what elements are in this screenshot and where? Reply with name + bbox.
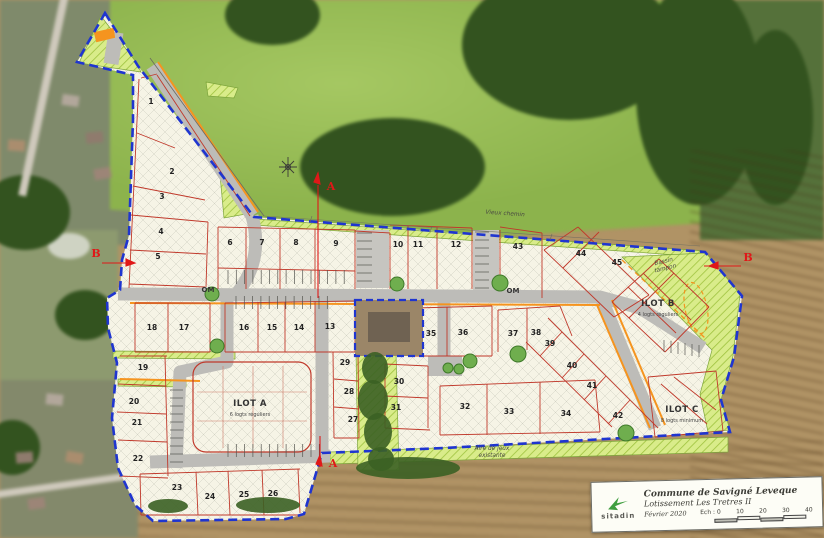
lot-number-32: 32 (460, 402, 470, 411)
hedge (364, 413, 392, 451)
lot-number-31: 31 (391, 403, 401, 412)
lot-number-35: 35 (426, 329, 436, 338)
title-block-text: Commune de Savigné Leveque Lotissement L… (640, 485, 819, 522)
lot-number-42: 42 (613, 411, 623, 420)
lot-number-20: 20 (129, 397, 139, 406)
logo-text: sitadin (601, 511, 635, 520)
sitadin-logo-icon (605, 493, 631, 512)
lot-number-30: 30 (394, 377, 404, 386)
tree-icon (454, 364, 464, 374)
scale-bar: Ech : 0 10 20 30 40 (700, 506, 818, 521)
annotation: OM (202, 286, 215, 294)
parking-strip (356, 230, 389, 288)
lot-number-7: 7 (259, 238, 264, 247)
scale-tick: 40 (790, 506, 813, 514)
logo: sitadin (596, 493, 641, 520)
scale-tick: 20 (744, 508, 767, 516)
hedge (236, 497, 300, 513)
lot-number-36: 36 (458, 328, 468, 337)
lot-number-41: 41 (587, 381, 597, 390)
lot-number-34: 34 (561, 409, 571, 418)
lot-number-43: 43 (513, 242, 523, 251)
tree-icon (463, 354, 477, 368)
ilot-sublabel: 8 logts minimum (661, 418, 703, 424)
north-compass-icon (279, 157, 297, 177)
lot-number-4: 4 (158, 227, 163, 236)
lot-number-26: 26 (268, 489, 278, 498)
lot-number-12: 12 (451, 240, 461, 249)
ilot-sublabel: 6 logts réguliers (230, 411, 271, 418)
annotation: OM (507, 287, 520, 295)
lotissement-plan-overlay: 1234567891011121314151617181920212223242… (0, 0, 824, 538)
hedge (368, 447, 394, 471)
lot-number-16: 16 (239, 323, 249, 332)
lot-number-28: 28 (344, 387, 354, 396)
lot-number-17: 17 (179, 323, 189, 332)
lot-number-23: 23 (172, 483, 182, 492)
existing-building-parcel (355, 300, 423, 356)
site-plan-screenshot: 1234567891011121314151617181920212223242… (0, 0, 824, 538)
lot-number-40: 40 (567, 361, 577, 370)
lot-number-29: 29 (340, 358, 350, 367)
lot-number-14: 14 (294, 323, 304, 332)
lot-number-2: 2 (169, 167, 174, 176)
annotation: Vieux chemin (485, 210, 525, 219)
scale-tick: 30 (767, 507, 790, 515)
ilot-label: ILOT A (233, 399, 267, 409)
lot-number-44: 44 (576, 249, 586, 258)
lot-number-22: 22 (133, 454, 143, 463)
section-marker-A: A (326, 180, 336, 193)
ilot-sublabel: 4 logts réguliers (638, 311, 679, 318)
lot-number-6: 6 (227, 238, 232, 247)
lot-number-21: 21 (132, 418, 142, 427)
hedge (358, 380, 388, 420)
tree-icon (443, 363, 453, 373)
lot-number-10: 10 (393, 240, 403, 249)
lot-number-19: 19 (138, 363, 148, 372)
tree-icon (390, 277, 404, 291)
lot-number-24: 24 (205, 492, 215, 501)
ilot-label: ILOT C (665, 405, 699, 415)
tree-icon (618, 425, 634, 441)
lot-number-15: 15 (267, 323, 277, 332)
tree-icon (510, 346, 526, 362)
lot-number-38: 38 (531, 328, 541, 337)
lot-number-13: 13 (325, 322, 335, 331)
scale-tick: 10 (721, 508, 744, 516)
lot-number-3: 3 (159, 192, 164, 201)
hedge (148, 499, 188, 513)
lot-number-33: 33 (504, 407, 514, 416)
tree-icon (210, 339, 224, 353)
section-marker-B: B (91, 247, 100, 260)
lot-number-37: 37 (508, 329, 518, 338)
hedge (362, 352, 388, 384)
section-marker-A: A (328, 457, 338, 470)
section-marker-B: B (743, 251, 752, 264)
plan-date: Février 2020 (644, 509, 700, 518)
lot-number-25: 25 (239, 490, 249, 499)
lot-number-8: 8 (293, 238, 298, 247)
lot-number-1: 1 (148, 97, 153, 106)
annotation: Aire de jeuxexistante (474, 446, 510, 459)
lot-number-45: 45 (612, 258, 622, 267)
title-block: sitadin Commune de Savigné Leveque Lotis… (590, 476, 823, 533)
scale-label: Ech : 0 (700, 509, 721, 516)
lot-number-39: 39 (545, 339, 555, 348)
lot-number-9: 9 (333, 239, 338, 248)
lot-number-18: 18 (147, 323, 157, 332)
lot-number-27: 27 (348, 415, 358, 424)
lot-number-11: 11 (413, 240, 423, 249)
lot-number-5: 5 (155, 252, 160, 261)
ilot-label: ILOT B (641, 299, 675, 309)
